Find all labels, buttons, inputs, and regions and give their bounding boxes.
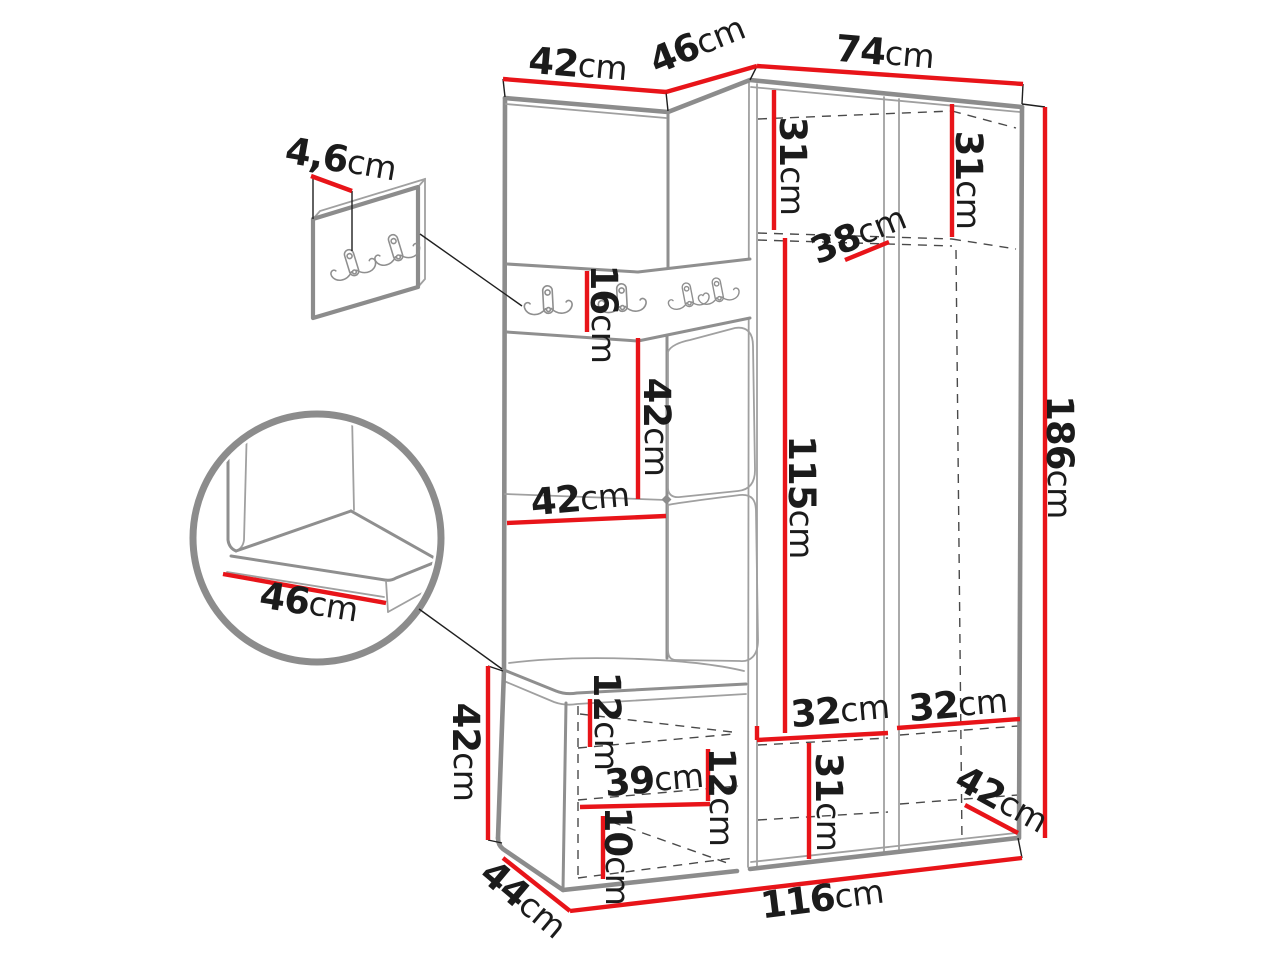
dim-label-bench-height: 42cm [445, 703, 488, 802]
dim-label-mid-panel-height: 42cm [636, 378, 679, 477]
detail-panel-hooks [313, 179, 425, 318]
dim-line-lower-compartment-left-width [757, 733, 888, 740]
dim-label-upper-shelf-left-height: 31cm [772, 117, 815, 216]
detail-circle-outline [193, 414, 441, 662]
dim-label-hook-panel-thickness: 4,6cm [282, 128, 400, 190]
corner-back-cushions [668, 328, 758, 661]
dim-label-total-height: 186cm [1039, 395, 1082, 519]
dim-label-hook-strip-height: 16cm [583, 265, 626, 364]
dim-line-mid-panel-width [507, 516, 666, 523]
hook-strip [507, 259, 750, 341]
dim-label-bench-top-clearance: 12cm [586, 672, 629, 771]
dim-label-total-width: 116cm [758, 869, 886, 927]
dim-label-upper-shelf-right-height: 31cm [948, 131, 991, 230]
dim-label-mid-panel-width: 42cm [529, 472, 631, 523]
dim-label-top-width-left: 42cm [527, 38, 629, 89]
dim-label-bench-bottom-clearance: 10cm [597, 807, 640, 906]
panel-joint-marker [662, 495, 672, 505]
dimension-drawing-canvas: 42cm 46cm 74cm 4,6cm 31cm 31cm 38cm 16cm… [0, 0, 1280, 960]
leader-circle-to-bench [419, 609, 502, 669]
dim-label-top-width-right: 74cm [834, 26, 936, 77]
dim-label-lower-compartment-left-width: 32cm [789, 684, 891, 735]
dim-label-wardrobe-side-depth: 42cm [948, 756, 1055, 842]
detail-circle-seat-corner [193, 414, 442, 662]
dim-label-lower-compartment-height: 31cm [808, 753, 851, 852]
dim-label-bench-shelf-spacing: 12cm [701, 748, 744, 847]
dim-label-interior-height: 115cm [781, 435, 824, 559]
dim-label-upper-shelf-depth: 38cm [804, 196, 912, 273]
furniture-dimension-diagram: 42cm 46cm 74cm 4,6cm 31cm 31cm 38cm 16cm… [0, 0, 1280, 960]
